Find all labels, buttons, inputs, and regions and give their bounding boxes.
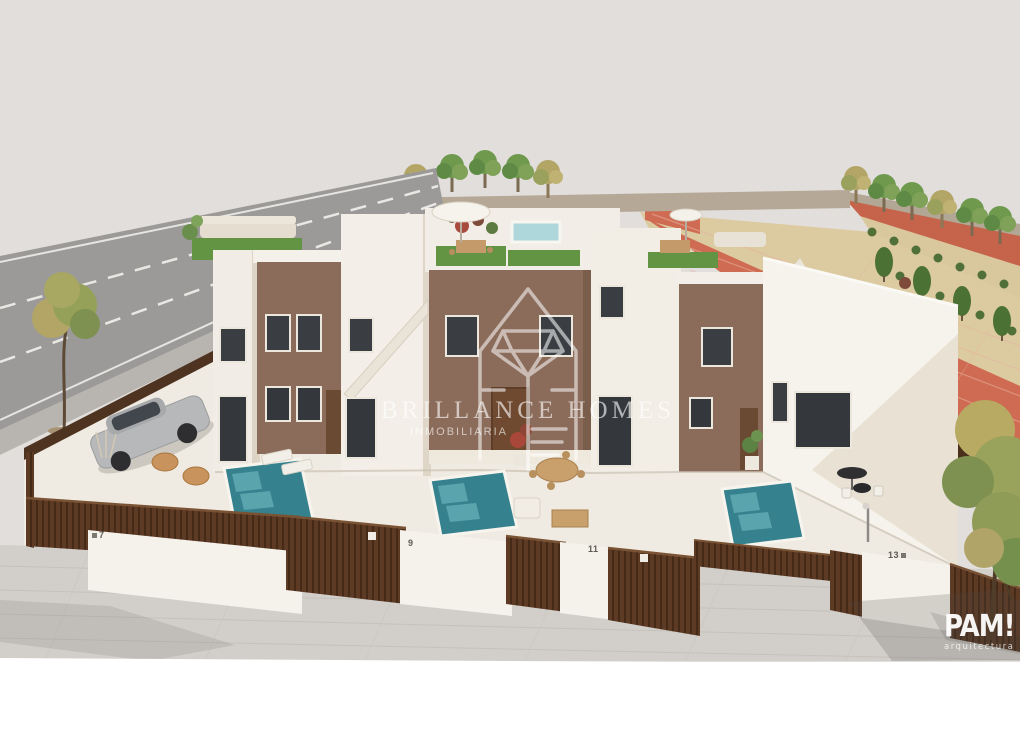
plot-icon-7 — [92, 533, 97, 538]
pool-unit-13 — [722, 481, 804, 547]
brown-facade-left — [257, 262, 342, 454]
house-unit-11 — [425, 202, 620, 464]
garage-gate-7 — [286, 516, 406, 604]
gate-wall-11 — [560, 542, 614, 620]
gate-9 — [506, 536, 566, 612]
gate-wall-9 — [400, 530, 512, 616]
plot-number-7: 7 — [92, 531, 105, 540]
plot-number-11: 11 — [588, 545, 599, 554]
scene-svg — [0, 0, 1020, 745]
front-door — [326, 390, 341, 454]
plot-number-13: 13 — [888, 551, 906, 560]
plot-icon-13 — [901, 553, 906, 558]
render-scene: 7 9 11 13 BRILLANCE HOMES INMOBILIARIA P… — [0, 0, 1020, 745]
front-door — [492, 388, 528, 460]
stair-tower-left — [341, 214, 431, 476]
bottom-white-band — [0, 658, 1020, 745]
pool-unit-11 — [430, 471, 517, 536]
brown-facade-center — [429, 270, 591, 460]
plot-number-9: 9 — [408, 539, 414, 548]
rooftop-pool — [512, 222, 560, 242]
